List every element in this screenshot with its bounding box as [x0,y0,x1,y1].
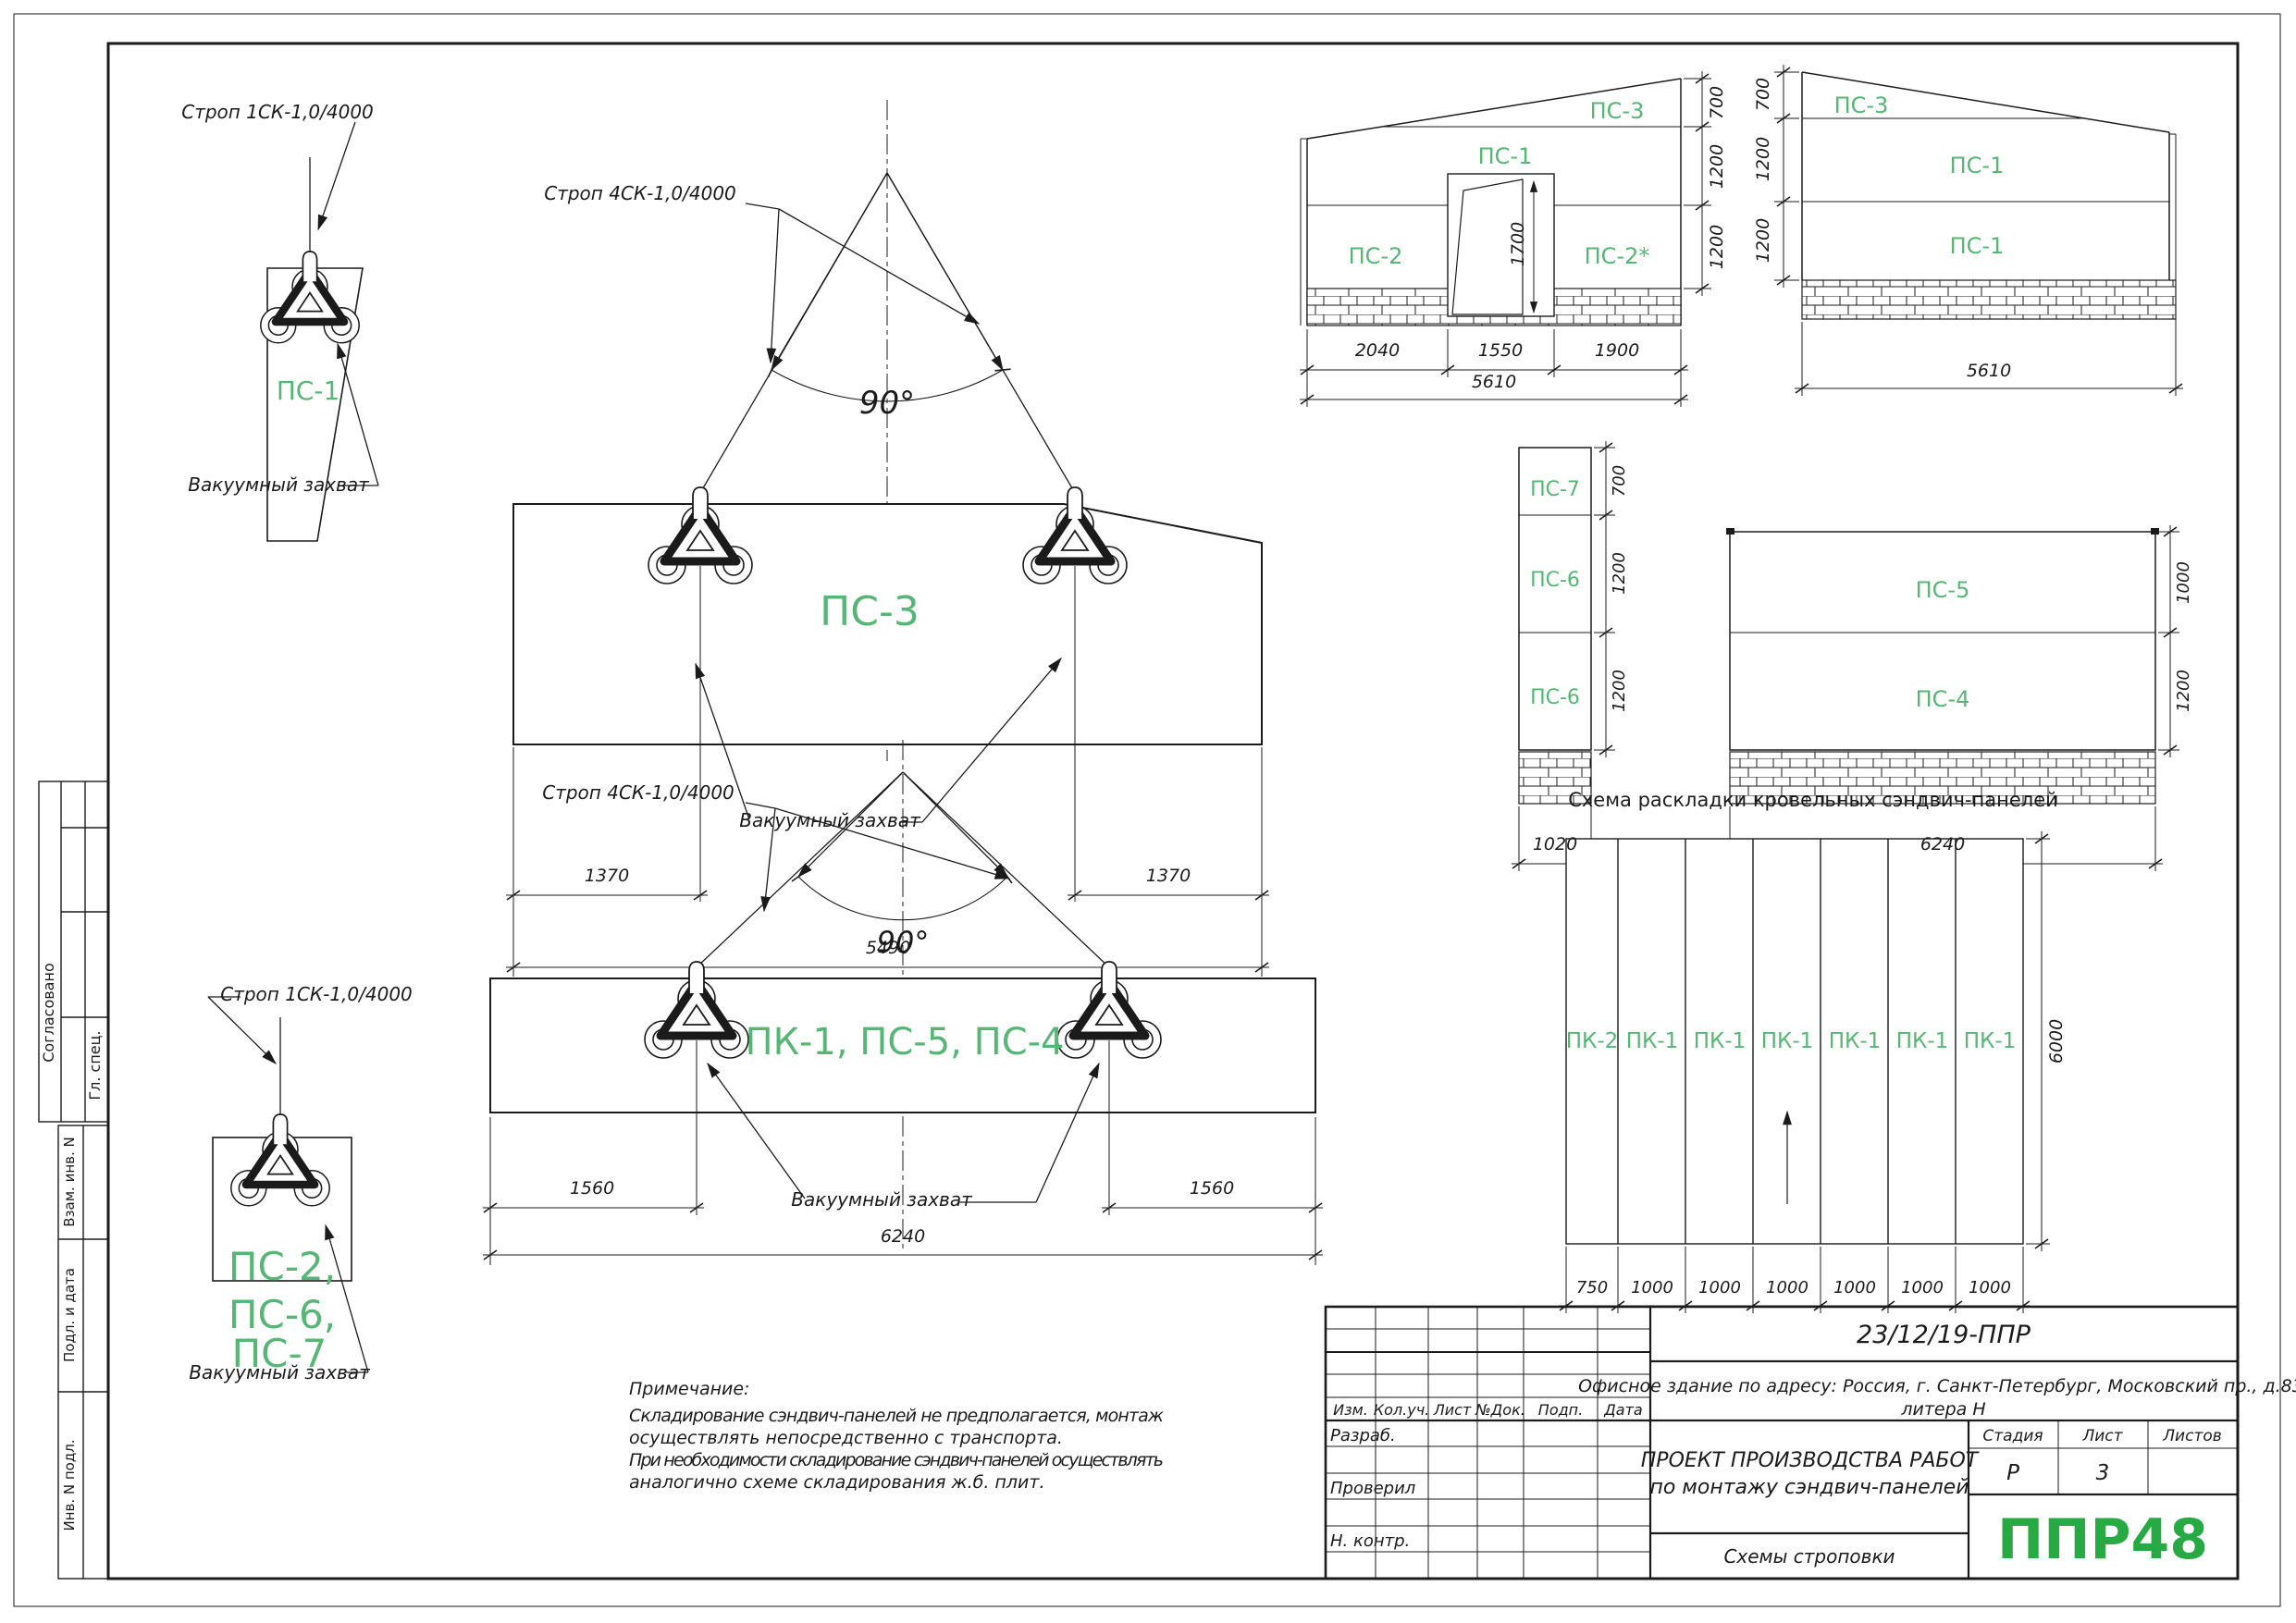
elev1-h700: 700 [1707,86,1727,119]
roof-pk1-6: ПК-1 [1964,1029,2017,1053]
vacuum-grip-label-top-left: Вакуумный захват [188,473,370,496]
doc-number: 23/12/19-ППР [1857,1321,2031,1349]
tb-col-list: Лист [1433,1401,1472,1419]
stamp-podl-data-label: Подл. и дата [61,1268,78,1362]
elev1-total: 5610 [1472,372,1516,392]
col-ps7: ПС-7 [1530,478,1580,501]
panel-label-ps2: ПС-2, [228,1244,336,1289]
dim-ps3-right: 1370 [1146,866,1191,886]
col-total: 1020 [1533,834,1577,855]
col-h1200a: 1200 [1610,552,1629,595]
notes-line-2: осуществлять непосредственно с транспорт… [629,1428,1063,1448]
elev1-w1900: 1900 [1595,340,1639,361]
roof-w1000-1: 1000 [1631,1278,1673,1297]
elev1-door-height: 1700 [1508,222,1528,266]
elev1-h1200b: 1200 [1707,225,1727,269]
stamp-soglasovano-label: Согласовано [40,963,57,1062]
sheet-value: 3 [2096,1461,2110,1485]
elev1-w2040: 2040 [1355,340,1400,361]
notes-heading: Примечание: [629,1379,749,1399]
elev2-total: 5610 [1967,361,2011,381]
stamp-vzam-inv-label: Взам. инв. N [61,1137,78,1226]
elev2-h1200b: 1200 [1753,218,1773,263]
wall-h1200: 1200 [2174,670,2193,712]
panel-label-ps3: ПС-3 [820,588,920,635]
col-ps6a: ПС-6 [1530,569,1580,592]
stage-label: Стадия [1982,1427,2043,1445]
scheme-four-sling-ps3 [506,100,1269,977]
wall-ps4: ПС-4 [1916,686,1970,712]
tb-row-proveril: Проверил [1330,1479,1415,1498]
tb-row-razrab: Разраб. [1330,1426,1396,1445]
roof-w1000-2: 1000 [1698,1278,1741,1297]
roof-w1000-3: 1000 [1766,1278,1808,1297]
project-title-line-1: ПРОЕКТ ПРОИЗВОДСТВА РАБОТ [1641,1449,1980,1472]
sling-label-top-left: Строп 1СК-1,0/4000 [181,101,374,123]
dim-pk1-total: 6240 [881,1226,925,1247]
vacuum-grip-label-ps3: Вакуумный захват [739,809,921,831]
tb-col-ndok: №Док. [1475,1401,1525,1419]
angle-label-ps3: 90° [859,385,915,422]
vacuum-grip-label-bottom-left: Вакуумный захват [189,1361,371,1383]
roof-pk1-4: ПК-1 [1829,1029,1882,1053]
tb-col-koluch: Кол.уч. [1374,1401,1429,1419]
project-title-line-2: по монтажу сэндвич-панелей [1649,1476,1969,1499]
dim-pk1-left: 1560 [570,1178,614,1199]
wall-ps5: ПС-5 [1916,577,1970,603]
panel-label-pk1-ps5-ps4: ПК-1, ПС-5, ПС-4 [746,1021,1065,1064]
elev2-h1200a: 1200 [1753,137,1773,181]
vacuum-grip-label-pk1: Вакуумный захват [791,1188,973,1211]
elev1-ps1: ПС-1 [1478,143,1533,169]
roof-pk1-1: ПК-1 [1626,1029,1679,1053]
elev2-ps1b: ПС-1 [1950,233,2005,259]
col-h700: 700 [1610,465,1629,497]
col-ps6b: ПС-6 [1530,686,1580,709]
stamp-inv-podl-label: Инв. N подл. [61,1439,78,1531]
notes-line-3: При необходимости складирование сэндвич-… [629,1450,1164,1470]
sling-label-ps3: Строп 4СК-1,0/4000 [544,182,736,204]
roof-pk1-3: ПК-1 [1761,1029,1814,1053]
stage-value: Р [2006,1461,2019,1485]
tb-row-nkontr: Н. контр. [1330,1531,1410,1551]
address-line-2: литера Н [1900,1399,1985,1420]
elev2-ps3: ПС-3 [1834,92,1889,118]
elev1-ps2: ПС-2 [1349,243,1403,269]
drawing-canvas: Согласовано Гл. спец. Взам. инв. N Подл.… [0,0,2296,1623]
roof-w1000-4: 1000 [1833,1278,1876,1297]
col-h1200b: 1200 [1610,670,1629,712]
notes-line-1: Складирование сэндвич-панелей не предпол… [629,1406,1164,1426]
roof-w750: 750 [1576,1278,1608,1297]
roof-layout-grid [1559,831,2050,1313]
stamp-gl-spec-label: Гл. спец. [86,1030,104,1100]
address-line-1: Офисное здание по адресу: Россия, г. Сан… [1578,1376,2296,1396]
roof-pk1-2: ПК-1 [1694,1029,1747,1053]
sheets-label: Листов [2162,1427,2222,1445]
wall-h1000: 1000 [2174,561,2193,604]
elev1-h1200a: 1200 [1707,144,1727,189]
roof-w1000-6: 1000 [1969,1278,2011,1297]
roof-layout-title: Схема раскладки кровельных сэндвич-панел… [1568,789,2058,811]
drawing-sheet: Согласовано Гл. спец. Взам. инв. N Подл.… [0,0,2296,1623]
elev1-ps2s: ПС-2* [1585,243,1650,269]
tb-col-podp: Подп. [1538,1401,1583,1419]
tb-col-data: Дата [1603,1401,1642,1419]
notes-block: Примечание: Складирование сэндвич-панеле… [629,1379,1164,1493]
sheet-label: Лист [2081,1427,2123,1445]
sheet-title: Схемы строповки [1723,1545,1895,1568]
elev2-h700: 700 [1753,78,1773,111]
panel-label-ps1: ПС-1 [277,375,340,406]
elev1-ps3: ПС-3 [1590,98,1645,124]
dim-ps3-left: 1370 [585,866,629,886]
sling-label-bottom-left: Строп 1СК-1,0/4000 [220,983,413,1005]
roof-pk1-5: ПК-1 [1896,1029,1949,1053]
elev2-ps1a: ПС-1 [1950,153,2005,178]
ppr48-logo: ППР48 [1997,1507,2208,1572]
tb-col-izm: Изм. [1333,1401,1368,1419]
elev1-w1550: 1550 [1478,340,1523,361]
roof-pk2: ПК-2 [1566,1029,1619,1053]
wall-total: 6240 [1920,834,1965,855]
roof-w1000-5: 1000 [1901,1278,1944,1297]
angle-label-pk1: 90° [877,925,930,960]
roof-depth: 6000 [2046,1019,2067,1064]
notes-line-4: аналогично схеме складирования ж.б. плит… [629,1472,1045,1493]
sling-label-pk1: Строп 4СК-1,0/4000 [542,781,734,804]
dim-pk1-right: 1560 [1190,1178,1234,1199]
